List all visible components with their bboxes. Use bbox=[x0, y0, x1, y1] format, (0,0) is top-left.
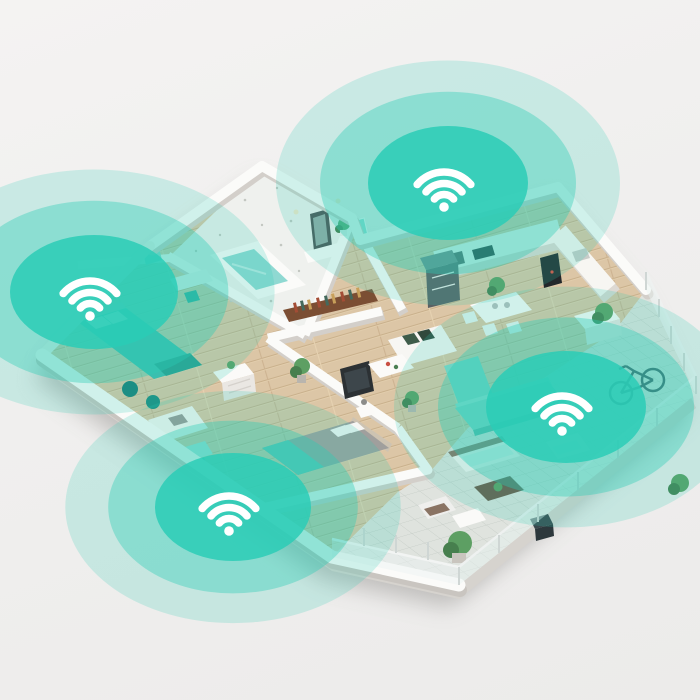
wifi-zone-bedroom-front bbox=[65, 391, 400, 623]
lamp bbox=[361, 399, 367, 405]
wifi-coverage-illustration bbox=[0, 0, 700, 700]
floorplan-scene bbox=[0, 0, 700, 700]
wifi-zone-kitchen bbox=[276, 61, 620, 306]
